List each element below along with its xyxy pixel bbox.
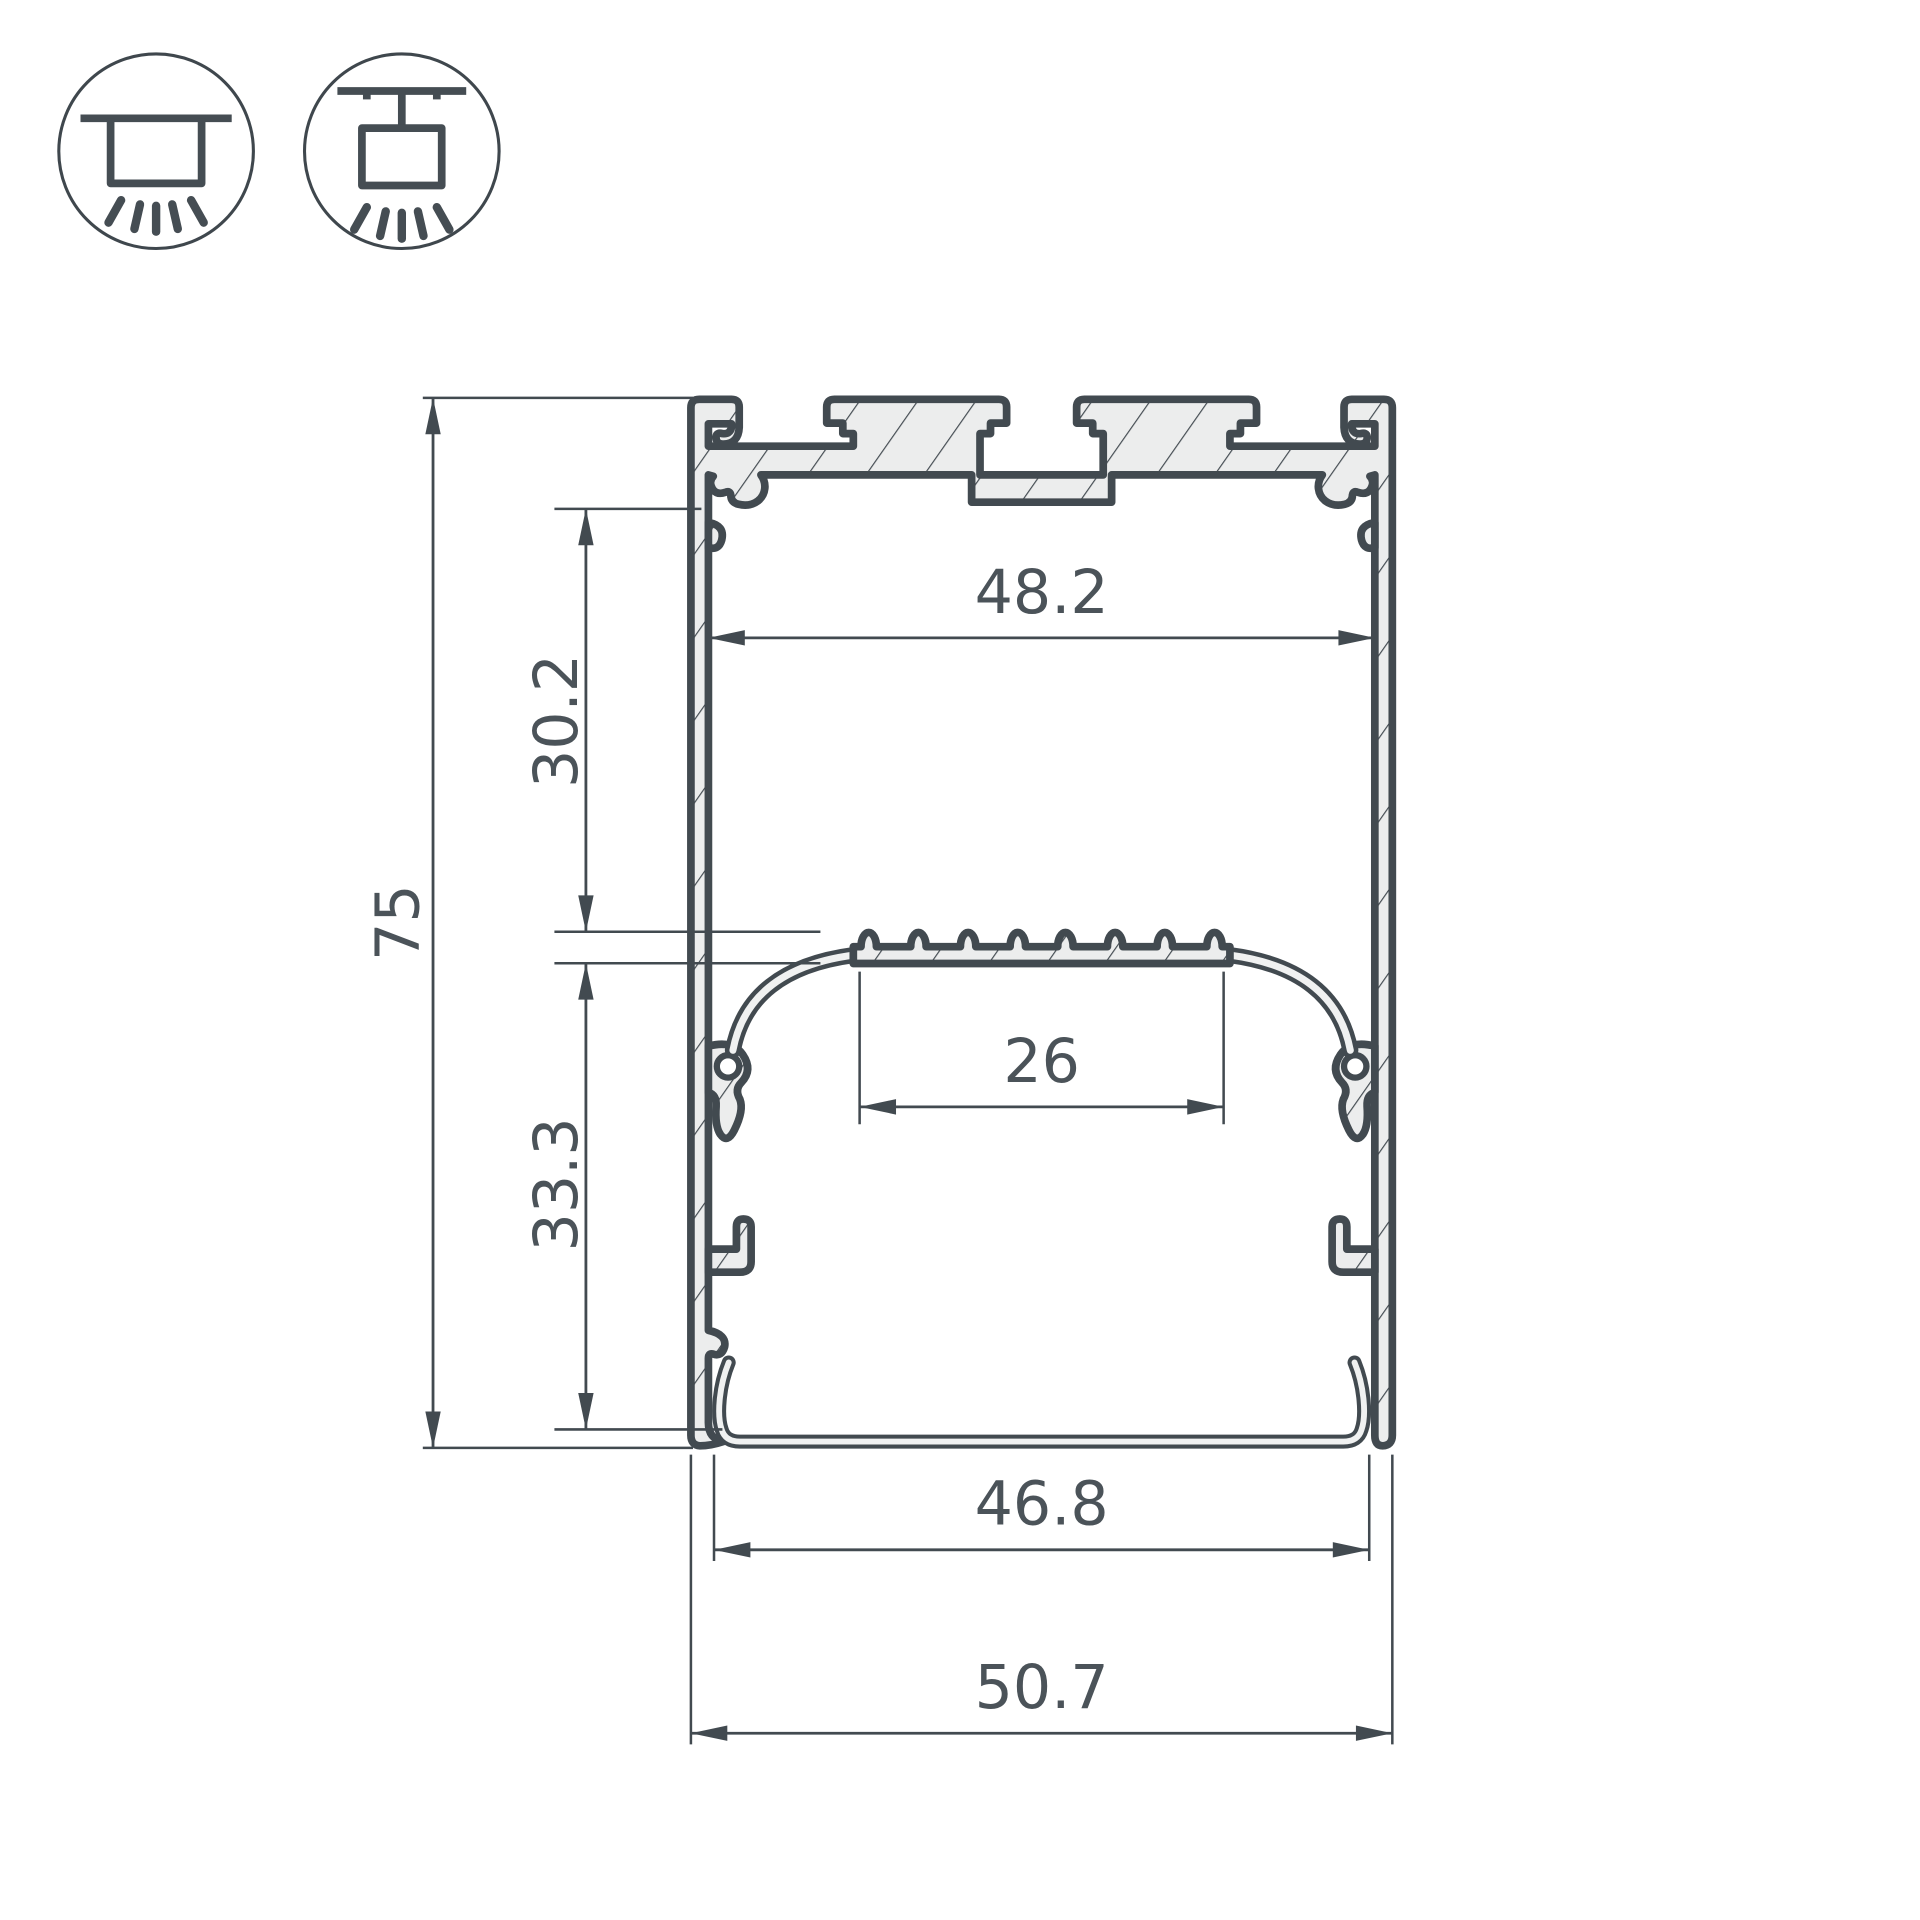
dim-inner-top-width-label: 48.2 (975, 558, 1109, 628)
dim-lower-chamber-label: 33.3 (522, 1117, 592, 1251)
dim-overall-width-label: 50.7 (975, 1653, 1109, 1723)
dim-total-height: 75 (364, 398, 693, 1448)
page-root: 75 30.2 33.3 48.2 26 (0, 0, 1920, 1920)
dim-inner-top-width: 48.2 (708, 558, 1374, 645)
surface-icon-fixture-box (111, 118, 202, 183)
dim-bottom-opening-label: 46.8 (975, 1470, 1109, 1540)
surface-icon-light-rays (109, 200, 204, 232)
boss-hole-right (1344, 1055, 1366, 1077)
pendant-icon-fixture-box (362, 128, 442, 185)
mount-icon-pendant (305, 54, 500, 249)
diffuser (719, 1363, 1364, 1442)
dim-led-shelf-width: 26 (860, 972, 1224, 1125)
clip-lip-right (1361, 522, 1375, 548)
dim-bottom-opening-width: 46.8 (714, 1455, 1369, 1561)
wall-hook-left (708, 1219, 751, 1272)
wall-hook-right (1332, 1219, 1375, 1272)
led-shelf (853, 932, 1230, 963)
boss-hole-left (717, 1055, 739, 1077)
technical-drawing: 75 30.2 33.3 48.2 26 (0, 0, 1920, 1920)
mount-icon-surface (59, 54, 254, 249)
pendant-icon-light-rays (354, 207, 449, 239)
dim-upper-chamber-label: 30.2 (522, 654, 592, 788)
clip-lip-left (708, 522, 722, 548)
profile-body (691, 399, 1392, 1446)
profile-cross-section (691, 399, 1392, 1446)
dim-total-height-label: 75 (364, 884, 434, 961)
dim-upper-chamber-height: 30.2 (522, 509, 821, 932)
dim-lower-chamber-height: 33.3 (522, 963, 821, 1429)
dim-led-shelf-width-label: 26 (1003, 1027, 1080, 1097)
